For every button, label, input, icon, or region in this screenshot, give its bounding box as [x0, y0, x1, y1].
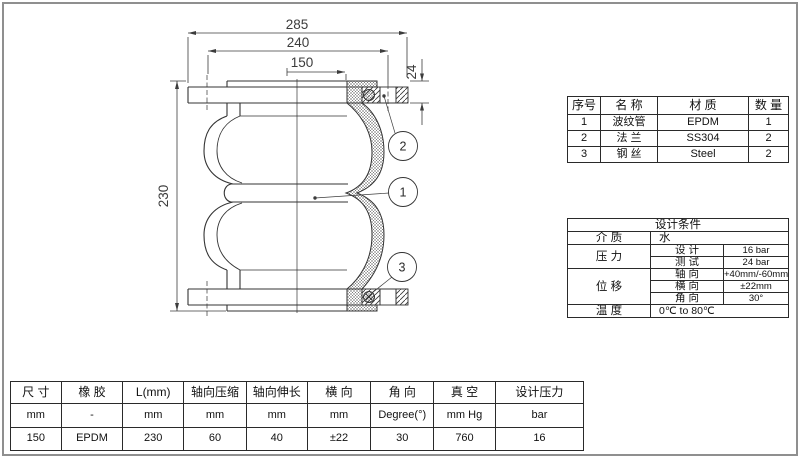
- design-title: 设计条件: [568, 219, 789, 232]
- displacement-label: 位 移: [568, 269, 651, 305]
- parts-header-material: 材 质: [658, 97, 749, 115]
- pressure-design-label: 设 计: [651, 245, 724, 257]
- spec-units-row: mm - mm mm mm mm Degree(°) mm Hg bar: [11, 404, 584, 428]
- parts-row: 3 钢 丝 Steel 2: [568, 147, 789, 163]
- pressure-design-value: 16 bar: [724, 245, 789, 257]
- parts-row: 2 法 兰 SS304 2: [568, 131, 789, 147]
- pressure-test-value: 24 bar: [724, 257, 789, 269]
- datasheet-page: 285 240 150 24 230 1 2 3 序号 名 称 材 质 数 量: [0, 0, 800, 457]
- disp-lateral-label: 横 向: [651, 281, 724, 293]
- parts-header-qty: 数 量: [749, 97, 789, 115]
- parts-header-name: 名 称: [601, 97, 658, 115]
- callout-2-number: 2: [400, 140, 407, 154]
- temperature-value: 0℃ to 80℃: [651, 305, 789, 318]
- disp-axial-label: 轴 向: [651, 269, 724, 281]
- parts-header-no: 序号: [568, 97, 601, 115]
- spec-header-row: 尺 寸 橡 胶 L(mm) 轴向压缩 轴向伸长 横 向 角 向 真 空 设计压力: [11, 382, 584, 404]
- medium-value: 水: [651, 232, 789, 245]
- rubber-wall-section: [346, 103, 384, 289]
- design-conditions-table: 设计条件 介 质 水 压 力 设 计 16 bar 测 试 24 bar 位 移…: [567, 218, 789, 318]
- bellows-outline-view: [188, 75, 408, 317]
- medium-label: 介 质: [568, 232, 651, 245]
- parts-table: 序号 名 称 材 质 数 量 1 波纹管 EPDM 1 2 法 兰 SS304 …: [567, 96, 789, 163]
- parts-row: 1 波纹管 EPDM 1: [568, 115, 789, 131]
- spec-values-row: 150 EPDM 230 60 40 ±22 30 760 16: [11, 428, 584, 451]
- callout-3-number: 3: [399, 261, 406, 275]
- pressure-label: 压 力: [568, 245, 651, 269]
- disp-axial-value: +40mm/-60mm: [724, 269, 789, 281]
- dim-150: 150: [291, 55, 314, 70]
- callout-1-number: 1: [400, 186, 407, 200]
- dimension-arrows: [175, 31, 424, 311]
- spec-table: 尺 寸 橡 胶 L(mm) 轴向压缩 轴向伸长 横 向 角 向 真 空 设计压力…: [10, 381, 584, 451]
- dim-285: 285: [286, 17, 309, 32]
- bead-wire-top: [364, 90, 375, 101]
- temperature-label: 温 度: [568, 305, 651, 318]
- disp-angular-value: 30°: [724, 293, 789, 305]
- dim-230: 230: [156, 185, 171, 208]
- disp-lateral-value: ±22mm: [724, 281, 789, 293]
- dim-24: 24: [404, 64, 419, 80]
- dim-240: 240: [287, 35, 310, 50]
- engineering-drawing: 285 240 150 24 230 1 2 3: [0, 0, 460, 345]
- disp-angular-label: 角 向: [651, 293, 724, 305]
- pressure-test-label: 测 试: [651, 257, 724, 269]
